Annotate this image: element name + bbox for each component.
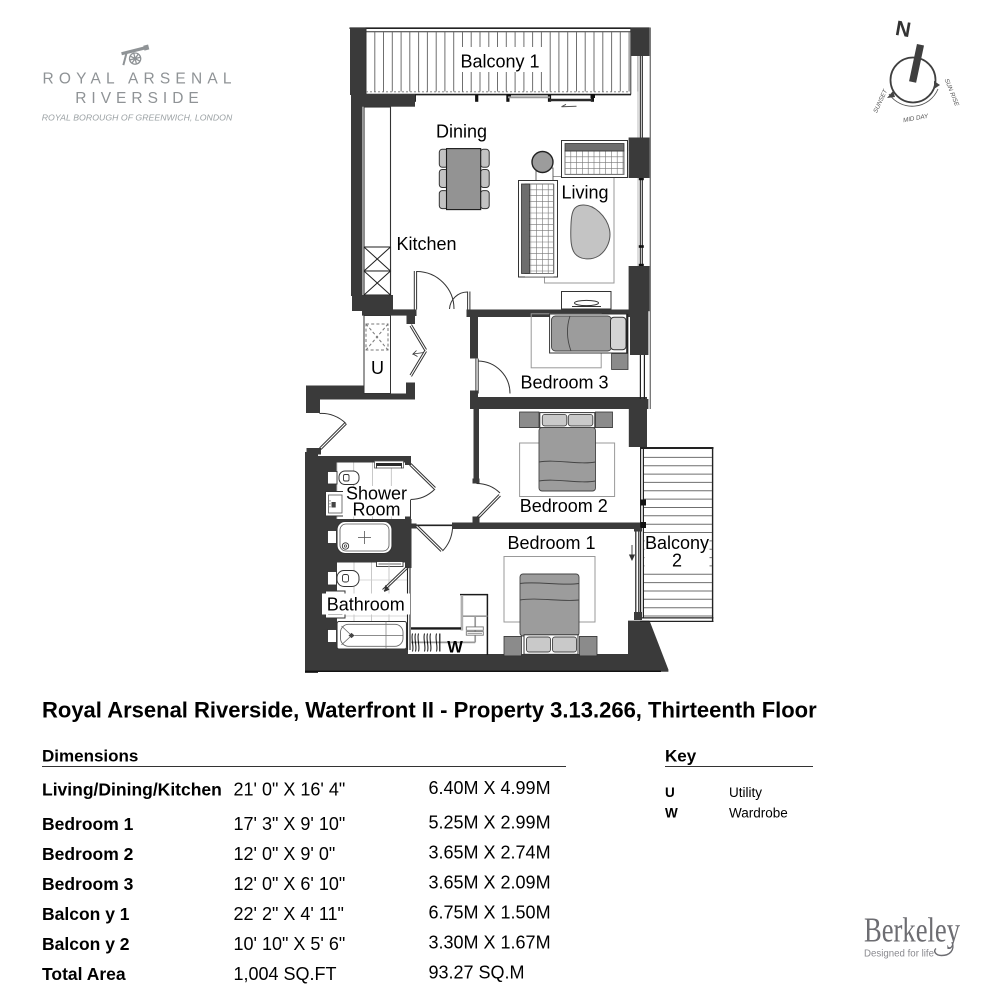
svg-text:U: U xyxy=(665,785,675,800)
svg-text:2: 2 xyxy=(672,551,682,571)
svg-text:5.25M X 2.99M: 5.25M X 2.99M xyxy=(429,813,551,833)
svg-text:Dining: Dining xyxy=(436,122,487,142)
svg-text:Royal Arsenal Riverside, Water: Royal Arsenal Riverside, Waterfront II -… xyxy=(42,698,817,723)
svg-text:22' 2" X 4' 11": 22' 2" X 4' 11" xyxy=(234,904,344,924)
svg-text:3.30M X 1.67M: 3.30M X 1.67M xyxy=(429,933,551,953)
svg-text:Dimensions: Dimensions xyxy=(42,747,138,766)
svg-text:Balcon y 2: Balcon y 2 xyxy=(42,934,130,954)
svg-text:Bedroom 2: Bedroom 2 xyxy=(42,844,134,864)
svg-text:RIVERSIDE: RIVERSIDE xyxy=(75,90,204,107)
svg-text:Total Area: Total Area xyxy=(42,964,126,984)
svg-text:93.27 SQ.M: 93.27 SQ.M xyxy=(429,963,525,983)
svg-text:Bedroom 2: Bedroom 2 xyxy=(520,496,608,516)
svg-text:Berkeley: Berkeley xyxy=(864,911,960,950)
svg-text:Wardrobe: Wardrobe xyxy=(729,806,788,821)
svg-text:Bedroom 3: Bedroom 3 xyxy=(520,373,608,393)
svg-text:Bathroom: Bathroom xyxy=(327,595,405,615)
svg-text:6.75M X 1.50M: 6.75M X 1.50M xyxy=(429,903,551,923)
svg-text:17' 3" X 9' 10": 17' 3" X 9' 10" xyxy=(234,814,346,834)
svg-text:Bedroom 1: Bedroom 1 xyxy=(42,814,134,834)
svg-text:Designed for life: Designed for life xyxy=(864,948,934,960)
svg-text:1,004 SQ.FT: 1,004 SQ.FT xyxy=(234,964,337,984)
svg-text:W: W xyxy=(665,806,678,821)
svg-text:W: W xyxy=(447,638,463,656)
svg-text:Bedroom 3: Bedroom 3 xyxy=(42,874,134,894)
svg-text:21' 0" X 16' 4": 21' 0" X 16' 4" xyxy=(234,780,346,800)
svg-text:Key: Key xyxy=(665,747,697,766)
svg-text:12' 0" X 9' 0": 12' 0" X 9' 0" xyxy=(234,844,336,864)
svg-text:3.65M X 2.74M: 3.65M X 2.74M xyxy=(429,843,551,863)
svg-text:ROYAL ARSENAL: ROYAL ARSENAL xyxy=(42,71,236,88)
svg-text:Kitchen: Kitchen xyxy=(396,234,456,254)
svg-text:3.65M X 2.09M: 3.65M X 2.09M xyxy=(429,873,551,893)
svg-text:Bedroom 1: Bedroom 1 xyxy=(507,533,595,553)
svg-text:6.40M X 4.99M: 6.40M X 4.99M xyxy=(429,778,551,798)
svg-text:Balcony 1: Balcony 1 xyxy=(460,52,539,72)
svg-text:Room: Room xyxy=(352,500,400,520)
svg-text:Balcon y 1: Balcon y 1 xyxy=(42,904,130,924)
svg-text:Living/Dining/Kitchen: Living/Dining/Kitchen xyxy=(42,780,222,800)
svg-text:12' 0" X 6' 10": 12' 0" X 6' 10" xyxy=(234,874,346,894)
svg-text:ROYAL BOROUGH OF GREENWICH, LO: ROYAL BOROUGH OF GREENWICH, LONDON xyxy=(42,113,233,123)
svg-text:10' 10" X 5' 6": 10' 10" X 5' 6" xyxy=(234,934,346,954)
svg-text:U: U xyxy=(371,358,384,378)
svg-text:Utility: Utility xyxy=(729,785,762,800)
svg-text:Living: Living xyxy=(561,183,608,203)
